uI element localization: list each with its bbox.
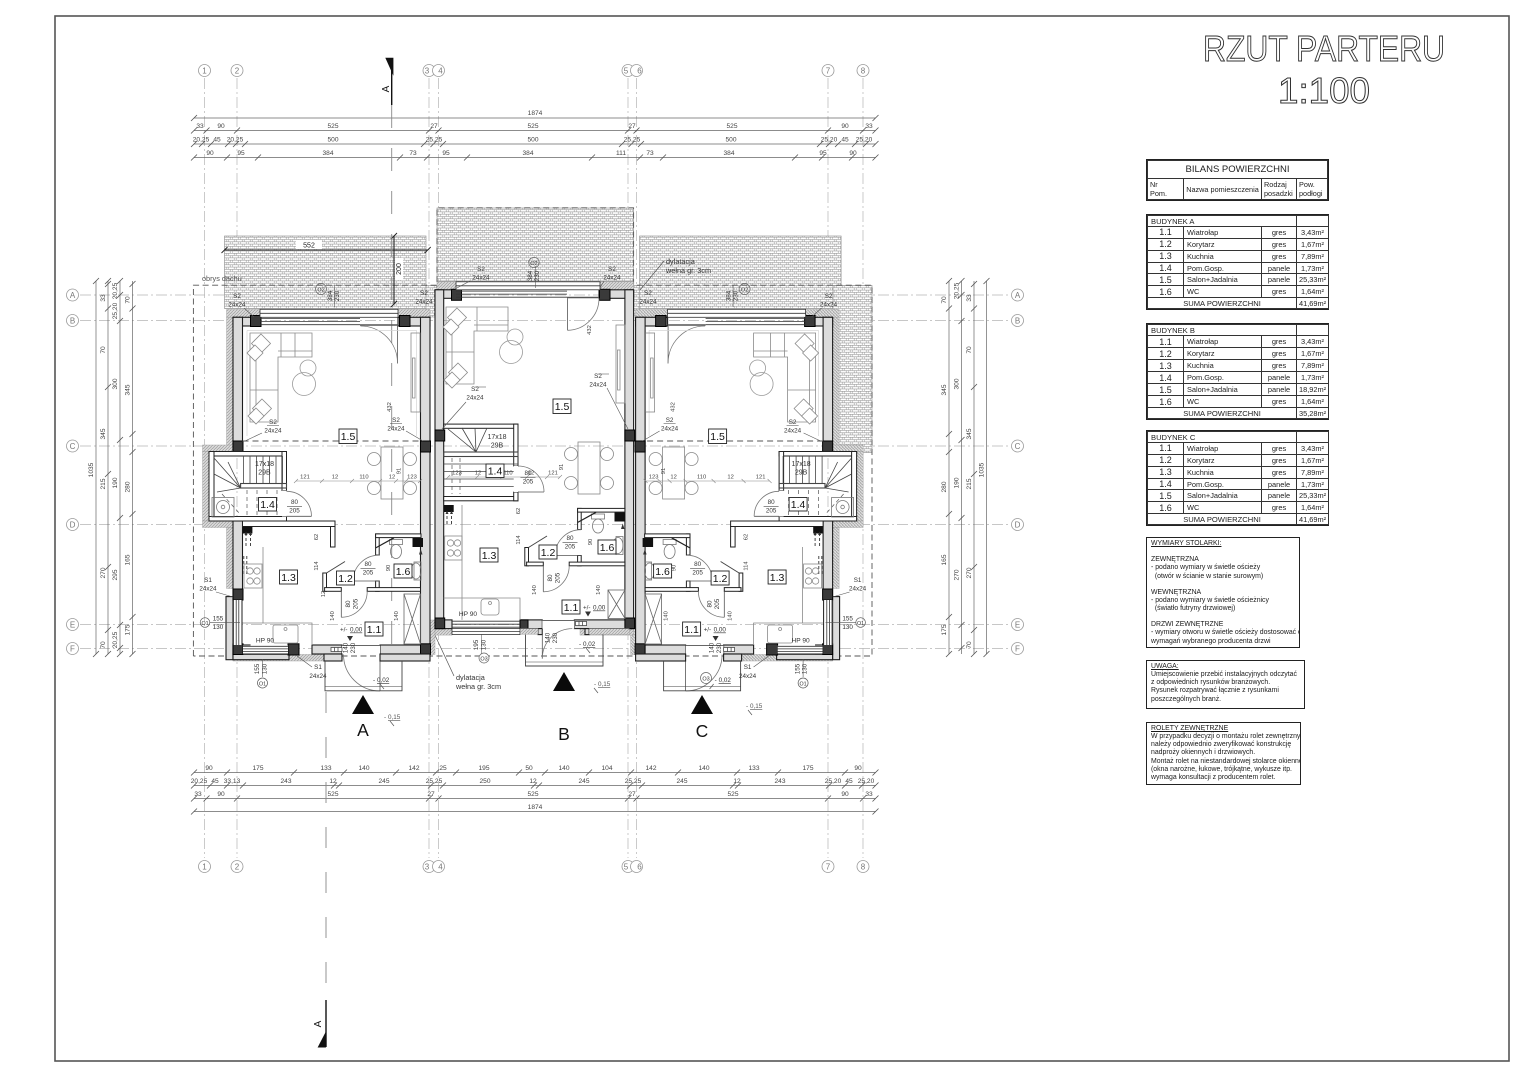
svg-text:243: 243 <box>774 778 785 785</box>
svg-text:12: 12 <box>528 471 534 477</box>
svg-text:90: 90 <box>841 791 849 798</box>
svg-text:12: 12 <box>321 591 327 597</box>
svg-text:24x24: 24x24 <box>472 275 490 282</box>
svg-text:20,25: 20,25 <box>191 778 208 785</box>
svg-text:91: 91 <box>661 468 667 474</box>
svg-text:S1: S1 <box>314 664 322 671</box>
svg-text:110: 110 <box>503 471 512 477</box>
svg-text:1035: 1035 <box>88 462 95 477</box>
svg-text:1.5: 1.5 <box>555 401 570 413</box>
svg-text:-: - <box>594 681 596 688</box>
svg-text:1.3: 1.3 <box>770 572 785 584</box>
svg-text:12: 12 <box>332 475 338 481</box>
svg-text:525: 525 <box>327 791 338 798</box>
svg-text:140: 140 <box>698 765 709 772</box>
svg-text:90: 90 <box>849 150 857 157</box>
svg-text:1.4: 1.4 <box>260 499 275 511</box>
svg-text:1.6: 1.6 <box>600 542 615 554</box>
svg-text:12: 12 <box>475 471 481 477</box>
svg-text:80: 80 <box>364 561 372 568</box>
svg-text:133: 133 <box>320 765 331 772</box>
svg-text:230: 230 <box>716 642 723 653</box>
svg-text:33: 33 <box>966 294 973 302</box>
svg-text:205: 205 <box>565 544 576 551</box>
svg-text:95: 95 <box>237 150 245 157</box>
svg-text:175: 175 <box>941 624 948 635</box>
svg-text:20,25: 20,25 <box>227 137 244 144</box>
svg-text:33,13: 33,13 <box>224 778 241 785</box>
svg-text:90: 90 <box>217 791 225 798</box>
svg-text:45: 45 <box>841 137 849 144</box>
svg-text:8: 8 <box>861 67 866 76</box>
svg-text:140: 140 <box>330 611 336 621</box>
svg-text:0,00: 0,00 <box>714 627 727 634</box>
svg-text:27: 27 <box>628 791 636 798</box>
svg-text:142: 142 <box>645 765 656 772</box>
svg-text:111: 111 <box>616 150 626 157</box>
svg-text:24x24: 24x24 <box>199 586 217 593</box>
svg-text:245: 245 <box>578 778 589 785</box>
svg-text:1.1: 1.1 <box>564 602 579 614</box>
svg-text:140: 140 <box>532 585 538 595</box>
svg-text:133: 133 <box>748 765 759 772</box>
svg-text:552: 552 <box>303 243 315 250</box>
svg-text:140: 140 <box>343 642 350 653</box>
svg-text:25,20: 25,20 <box>821 137 838 144</box>
svg-text:250: 250 <box>479 778 490 785</box>
svg-text:A: A <box>313 1020 324 1027</box>
svg-text:1: 1 <box>202 863 207 872</box>
svg-text:0,15: 0,15 <box>598 681 611 688</box>
svg-text:245: 245 <box>378 778 389 785</box>
svg-text:3: 3 <box>425 863 430 872</box>
svg-text:1.2: 1.2 <box>713 573 728 585</box>
svg-text:432: 432 <box>387 402 393 412</box>
svg-text:24x24: 24x24 <box>820 302 838 309</box>
svg-text:obrys dachu: obrys dachu <box>202 274 242 283</box>
svg-text:270: 270 <box>966 567 973 578</box>
svg-text:175: 175 <box>252 765 263 772</box>
svg-text:525: 525 <box>727 791 738 798</box>
svg-text:165: 165 <box>125 554 132 565</box>
svg-text:500: 500 <box>327 137 338 144</box>
svg-text:B: B <box>558 724 570 744</box>
svg-text:243: 243 <box>280 778 291 785</box>
svg-text:70: 70 <box>100 641 107 649</box>
svg-text:384: 384 <box>527 270 534 281</box>
svg-text:20,25: 20,25 <box>112 631 119 648</box>
svg-text:205: 205 <box>692 570 703 577</box>
svg-text:0,02: 0,02 <box>583 641 596 648</box>
svg-text:27: 27 <box>628 123 636 130</box>
svg-text:205: 205 <box>555 572 562 583</box>
svg-text:1874: 1874 <box>528 110 543 117</box>
svg-text:D: D <box>1015 521 1021 530</box>
svg-text:90: 90 <box>205 765 213 772</box>
svg-text:E: E <box>70 621 75 630</box>
svg-text:1.1: 1.1 <box>684 624 699 636</box>
svg-text:29B: 29B <box>491 443 504 450</box>
svg-text:-: - <box>373 677 375 684</box>
svg-text:1: 1 <box>202 67 207 76</box>
svg-text:432: 432 <box>587 325 593 335</box>
svg-text:121: 121 <box>300 475 310 481</box>
svg-text:70: 70 <box>966 346 973 354</box>
svg-text:80: 80 <box>768 499 776 506</box>
svg-text:2: 2 <box>235 863 240 872</box>
svg-text:O2: O2 <box>530 261 537 267</box>
svg-text:F: F <box>70 645 75 654</box>
svg-text:295: 295 <box>112 569 119 580</box>
svg-text:90: 90 <box>588 539 594 545</box>
svg-text:S2: S2 <box>269 419 277 426</box>
svg-text:6: 6 <box>637 67 642 76</box>
svg-text:24x24: 24x24 <box>387 426 405 433</box>
svg-text:33: 33 <box>865 123 873 130</box>
svg-text:24x24: 24x24 <box>264 428 282 435</box>
svg-text:110: 110 <box>359 475 368 481</box>
svg-text:17x18: 17x18 <box>487 434 506 441</box>
svg-text:205: 205 <box>289 508 300 515</box>
svg-text:-: - <box>579 641 581 648</box>
svg-text:45: 45 <box>845 778 853 785</box>
svg-text:280: 280 <box>941 481 948 492</box>
svg-text:25,20: 25,20 <box>858 778 875 785</box>
svg-text:S2: S2 <box>477 266 485 273</box>
svg-text:33: 33 <box>194 791 202 798</box>
svg-text:525: 525 <box>327 123 338 130</box>
svg-text:HP 90: HP 90 <box>256 638 275 645</box>
svg-text:50: 50 <box>525 765 533 772</box>
svg-text:80: 80 <box>707 600 714 608</box>
svg-text:230: 230 <box>733 290 740 301</box>
svg-text:1.4: 1.4 <box>791 499 806 511</box>
svg-text:A: A <box>1015 291 1021 300</box>
svg-text:45: 45 <box>213 137 221 144</box>
svg-text:+/-: +/- <box>340 627 348 634</box>
svg-text:91: 91 <box>559 464 565 470</box>
svg-text:500: 500 <box>725 137 736 144</box>
svg-text:33: 33 <box>196 123 204 130</box>
svg-text:5: 5 <box>624 863 629 872</box>
svg-text:B: B <box>70 317 75 326</box>
svg-text:24x24: 24x24 <box>784 428 802 435</box>
svg-text:+/-: +/- <box>704 627 712 634</box>
svg-text:dylatacja: dylatacja <box>456 673 486 682</box>
svg-text:70: 70 <box>966 641 973 649</box>
svg-text:345: 345 <box>100 428 107 439</box>
svg-text:205: 205 <box>714 598 721 609</box>
svg-text:121: 121 <box>548 471 558 477</box>
svg-text:17x18: 17x18 <box>792 461 811 468</box>
svg-text:215: 215 <box>966 478 973 489</box>
svg-text:4: 4 <box>438 67 443 76</box>
svg-text:S1: S1 <box>204 577 212 584</box>
svg-text:wełna gr. 3cm: wełna gr. 3cm <box>665 266 711 275</box>
svg-text:270: 270 <box>100 567 107 578</box>
svg-text:24x24: 24x24 <box>739 673 757 680</box>
svg-text:1874: 1874 <box>528 804 543 811</box>
svg-text:1.6: 1.6 <box>396 566 411 578</box>
svg-text:1.6: 1.6 <box>655 566 670 578</box>
svg-text:175: 175 <box>802 765 813 772</box>
svg-text:205: 205 <box>766 508 777 515</box>
svg-text:12: 12 <box>389 475 395 481</box>
svg-text:0,00: 0,00 <box>593 605 606 612</box>
svg-text:29B: 29B <box>795 470 808 477</box>
svg-text:C: C <box>696 721 709 741</box>
svg-text:121: 121 <box>756 475 766 481</box>
svg-text:90: 90 <box>841 123 849 130</box>
svg-text:270: 270 <box>954 569 961 580</box>
svg-text:205: 205 <box>523 479 534 486</box>
svg-text:24x24: 24x24 <box>849 586 867 593</box>
svg-text:25,20: 25,20 <box>112 302 119 319</box>
svg-text:S1: S1 <box>854 577 862 584</box>
svg-text:24x24: 24x24 <box>309 673 327 680</box>
svg-text:95: 95 <box>442 150 450 157</box>
svg-text:155: 155 <box>794 663 801 674</box>
svg-text:123: 123 <box>407 475 417 481</box>
svg-text:C: C <box>1015 442 1021 451</box>
svg-text:25,25: 25,25 <box>624 137 641 144</box>
svg-text:140: 140 <box>709 642 716 653</box>
svg-text:F: F <box>1015 645 1020 654</box>
svg-text:33: 33 <box>865 791 873 798</box>
svg-text:230: 230 <box>552 632 559 643</box>
svg-text:S2: S2 <box>392 417 400 424</box>
svg-text:525: 525 <box>726 123 737 130</box>
svg-text:O1: O1 <box>800 682 807 688</box>
svg-text:175: 175 <box>125 624 132 635</box>
svg-text:114: 114 <box>516 535 522 545</box>
svg-text:+/-: +/- <box>583 605 591 612</box>
svg-text:2: 2 <box>235 67 240 76</box>
svg-text:165: 165 <box>941 554 948 565</box>
svg-text:195: 195 <box>478 765 489 772</box>
svg-text:70: 70 <box>941 296 948 304</box>
svg-text:dylatacja: dylatacja <box>666 257 696 266</box>
svg-text:24x24: 24x24 <box>228 302 246 309</box>
svg-text:123: 123 <box>452 471 462 477</box>
svg-text:S1: S1 <box>744 664 752 671</box>
svg-text:0,15: 0,15 <box>388 714 401 721</box>
svg-text:0,02: 0,02 <box>377 677 390 684</box>
svg-text:O3: O3 <box>702 677 709 683</box>
svg-text:384: 384 <box>723 150 734 157</box>
svg-text:3: 3 <box>425 67 430 76</box>
svg-text:114: 114 <box>314 561 320 571</box>
svg-text:5: 5 <box>624 67 629 76</box>
svg-text:A: A <box>70 291 76 300</box>
svg-text:24x24: 24x24 <box>639 299 657 306</box>
svg-text:24x24: 24x24 <box>661 426 679 433</box>
svg-text:12: 12 <box>733 778 741 785</box>
svg-text:33: 33 <box>100 294 107 302</box>
svg-text:O3: O3 <box>480 657 487 663</box>
svg-text:73: 73 <box>409 150 417 157</box>
svg-text:12: 12 <box>329 778 337 785</box>
svg-text:205: 205 <box>363 570 374 577</box>
svg-text:8: 8 <box>861 863 866 872</box>
svg-text:384: 384 <box>327 290 334 301</box>
svg-text:12: 12 <box>670 475 676 481</box>
svg-text:4: 4 <box>438 863 443 872</box>
svg-text:130: 130 <box>842 624 853 631</box>
svg-text:80: 80 <box>345 600 352 608</box>
svg-text:24x24: 24x24 <box>603 275 621 282</box>
svg-text:S2: S2 <box>233 293 241 300</box>
svg-text:130: 130 <box>802 663 809 674</box>
svg-text:7: 7 <box>826 67 831 76</box>
svg-text:90: 90 <box>854 765 862 772</box>
svg-text:45: 45 <box>211 778 219 785</box>
svg-text:D: D <box>70 521 76 530</box>
svg-text:384: 384 <box>726 290 733 301</box>
svg-text:62: 62 <box>314 534 320 540</box>
svg-text:140: 140 <box>728 611 734 621</box>
svg-text:24x24: 24x24 <box>589 382 607 389</box>
svg-text:1.4: 1.4 <box>488 466 503 478</box>
svg-text:12: 12 <box>727 475 733 481</box>
svg-text:C: C <box>70 442 76 451</box>
svg-text:140: 140 <box>545 632 552 643</box>
svg-text:1.2: 1.2 <box>338 573 353 585</box>
svg-text:A: A <box>357 720 369 740</box>
svg-text:230: 230 <box>350 642 357 653</box>
svg-text:70: 70 <box>100 346 107 354</box>
svg-text:S2: S2 <box>825 293 833 300</box>
svg-text:155: 155 <box>213 616 224 623</box>
svg-text:O2: O2 <box>317 288 324 294</box>
svg-text:20,25: 20,25 <box>112 282 119 299</box>
svg-text:1035: 1035 <box>979 462 986 477</box>
svg-text:140: 140 <box>664 611 670 621</box>
svg-text:80: 80 <box>694 561 702 568</box>
svg-text:104: 104 <box>601 765 612 772</box>
svg-text:0,00: 0,00 <box>350 627 363 634</box>
svg-text:384: 384 <box>322 150 333 157</box>
svg-text:140: 140 <box>394 611 400 621</box>
svg-text:0,15: 0,15 <box>750 703 763 710</box>
svg-text:142: 142 <box>408 765 419 772</box>
svg-text:345: 345 <box>125 384 132 395</box>
svg-text:90: 90 <box>386 565 392 571</box>
svg-text:80: 80 <box>291 499 299 506</box>
svg-text:1.2: 1.2 <box>541 547 556 559</box>
svg-text:155: 155 <box>842 616 853 623</box>
svg-text:24x24: 24x24 <box>466 395 484 402</box>
svg-text:wełna gr. 3cm: wełna gr. 3cm <box>455 682 501 691</box>
svg-text:0,02: 0,02 <box>719 677 732 684</box>
svg-text:24x24: 24x24 <box>415 299 433 306</box>
svg-text:300: 300 <box>112 378 119 389</box>
svg-text:25,20: 25,20 <box>825 778 842 785</box>
svg-text:80: 80 <box>566 535 574 542</box>
svg-text:205: 205 <box>353 598 360 609</box>
svg-text:80: 80 <box>547 574 554 582</box>
svg-text:155: 155 <box>254 663 261 674</box>
svg-text:1.3: 1.3 <box>281 572 296 584</box>
svg-text:70: 70 <box>125 296 132 304</box>
svg-text:110: 110 <box>697 475 706 481</box>
svg-text:6: 6 <box>637 863 642 872</box>
svg-text:432: 432 <box>671 402 677 412</box>
svg-text:91: 91 <box>397 468 403 474</box>
svg-text:73: 73 <box>646 150 654 157</box>
svg-text:O1: O1 <box>259 682 266 688</box>
svg-text:140: 140 <box>558 765 569 772</box>
svg-text:1.1: 1.1 <box>367 624 382 636</box>
svg-text:O2: O2 <box>741 288 748 294</box>
svg-text:HP 90: HP 90 <box>791 638 810 645</box>
svg-text:1.5: 1.5 <box>710 431 725 443</box>
svg-text:525: 525 <box>527 791 538 798</box>
svg-text:200: 200 <box>396 263 403 275</box>
svg-text:29B: 29B <box>258 470 271 477</box>
svg-text:O1: O1 <box>857 621 864 627</box>
svg-text:20,25: 20,25 <box>954 282 961 299</box>
svg-text:-: - <box>715 677 717 684</box>
svg-text:25,25: 25,25 <box>426 778 443 785</box>
svg-text:500: 500 <box>527 137 538 144</box>
svg-text:S2: S2 <box>608 266 616 273</box>
svg-text:25,25: 25,25 <box>426 137 443 144</box>
svg-text:62: 62 <box>744 534 750 540</box>
svg-text:O1: O1 <box>201 621 208 627</box>
svg-text:525: 525 <box>527 123 538 130</box>
svg-text:90: 90 <box>206 150 214 157</box>
svg-text:130: 130 <box>213 624 224 631</box>
svg-text:20,25: 20,25 <box>193 137 210 144</box>
svg-text:345: 345 <box>966 428 973 439</box>
svg-text:25: 25 <box>439 765 447 772</box>
svg-text:114: 114 <box>744 561 750 571</box>
svg-text:B: B <box>1015 317 1020 326</box>
svg-text:230: 230 <box>534 270 541 281</box>
svg-text:12: 12 <box>529 778 537 785</box>
svg-text:S2: S2 <box>420 290 428 297</box>
svg-text:230: 230 <box>334 290 341 301</box>
svg-text:-: - <box>384 714 386 721</box>
svg-text:27: 27 <box>427 791 435 798</box>
svg-text:1.3: 1.3 <box>482 550 497 562</box>
svg-text:S2: S2 <box>644 290 652 297</box>
svg-text:-: - <box>746 703 748 710</box>
svg-text:17x18: 17x18 <box>255 461 274 468</box>
svg-text:27: 27 <box>430 123 438 130</box>
svg-text:25,20: 25,20 <box>856 137 873 144</box>
svg-text:190: 190 <box>112 477 119 488</box>
svg-text:90: 90 <box>672 565 678 571</box>
svg-text:195: 195 <box>473 639 480 650</box>
svg-text:25,25: 25,25 <box>625 778 642 785</box>
svg-text:90: 90 <box>217 123 225 130</box>
svg-text:S2: S2 <box>789 419 797 426</box>
svg-text:62: 62 <box>516 508 522 514</box>
svg-text:7: 7 <box>826 863 831 872</box>
svg-text:190: 190 <box>954 477 961 488</box>
svg-text:95: 95 <box>819 150 827 157</box>
svg-text:245: 245 <box>676 778 687 785</box>
svg-text:345: 345 <box>941 384 948 395</box>
svg-text:HP 90: HP 90 <box>459 611 478 618</box>
svg-text:140: 140 <box>358 765 369 772</box>
svg-text:215: 215 <box>100 478 107 489</box>
svg-text:E: E <box>1015 621 1020 630</box>
svg-text:123: 123 <box>649 475 659 481</box>
svg-text:300: 300 <box>954 378 961 389</box>
